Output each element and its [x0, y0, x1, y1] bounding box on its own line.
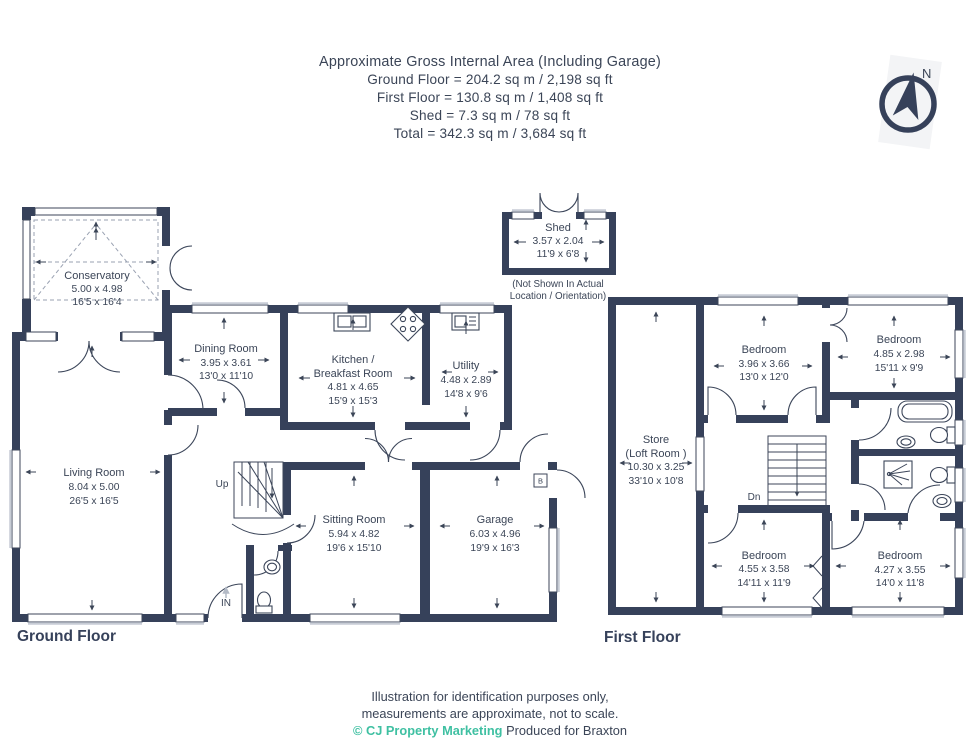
compass-north-label: N — [922, 66, 931, 81]
shed-note-line1: (Not Shown In Actual — [512, 279, 604, 290]
utility-imperial: 14'8 x 9'6 — [444, 389, 488, 400]
store-metric: 10.30 x 3.25 — [628, 462, 685, 473]
bedroom-tl-imperial: 13'0 x 12'0 — [739, 372, 788, 383]
bedroom-bl-metric: 4.55 x 3.58 — [739, 564, 790, 575]
kitchen-imperial: 15'9 x 15'3 — [328, 396, 377, 407]
entrance-label: IN — [221, 598, 231, 609]
store-door-screen — [696, 437, 704, 491]
sitting-room-metric: 5.94 x 4.82 — [329, 529, 380, 540]
kitchen-name-line1: Kitchen / — [332, 354, 376, 366]
bath-icon — [898, 401, 952, 422]
kitchen-name-line2: Breakfast Room — [314, 368, 393, 380]
boiler-icon: B — [534, 474, 547, 487]
conservatory-imperial: 16'5 x 16'4 — [72, 297, 121, 308]
garage-name: Garage — [477, 514, 514, 526]
shed-note-line2: Location / Orientation) — [510, 291, 606, 302]
bedroom-tr-name: Bedroom — [877, 334, 922, 346]
first-floor-labels: Store (Loft Room ) 10.30 x 3.25 33'10 x … — [625, 334, 925, 589]
dining-room-name: Dining Room — [194, 343, 258, 355]
store-imperial: 33'10 x 10'8 — [629, 476, 684, 487]
toilet-icon — [931, 427, 956, 443]
stairs-up-label: Up — [216, 479, 229, 490]
bedroom-br-imperial: 14'0 x 11'8 — [876, 578, 925, 589]
stairs-down-label: Dn — [748, 492, 761, 503]
ground-floor-title: Ground Floor — [17, 628, 116, 645]
wc-toilet-icon — [256, 592, 272, 613]
first-floor-plan: Dn — [604, 296, 965, 647]
shed-imperial: 11'9 x 6'8 — [537, 249, 580, 260]
footer: Illustration for identification purposes… — [0, 688, 980, 739]
garage-door — [549, 528, 557, 592]
footer-copyright: © CJ Property Marketing — [353, 723, 503, 738]
toilet-icon — [931, 467, 956, 483]
bedroom-tr-imperial: 15'11 x 9'9 — [875, 363, 924, 374]
stairs-down: Dn — [748, 436, 826, 508]
closet-doors — [813, 556, 822, 576]
store-name-line1: Store — [643, 434, 669, 446]
kitchen-metric: 4.81 x 4.65 — [328, 382, 379, 393]
hall-archway — [232, 524, 294, 535]
ground-floor-plan: Up — [11, 207, 586, 645]
store-name-line2: (Loft Room ) — [625, 448, 686, 460]
bedroom-br-name: Bedroom — [878, 550, 923, 562]
entrance-door-gap — [208, 613, 242, 623]
bedroom-bl-imperial: 14'11 x 11'9 — [737, 578, 791, 589]
bedroom-br-metric: 4.27 x 3.55 — [875, 565, 926, 576]
basin-icon — [897, 436, 915, 448]
bedroom-tl-metric: 3.96 x 3.66 — [739, 359, 790, 370]
floorplan-drawing: N — [0, 0, 980, 749]
shed-double-door — [540, 193, 578, 212]
living-room-name: Living Room — [63, 467, 124, 479]
french-door-gap — [58, 331, 120, 342]
shed-metric: 3.57 x 2.04 — [533, 236, 584, 247]
footer-disclaimer-line1: Illustration for identification purposes… — [0, 688, 980, 705]
footer-disclaimer-line2: measurements are approximate, not to sca… — [0, 705, 980, 722]
basin-icon — [933, 495, 951, 508]
first-floor-title: First Floor — [604, 629, 681, 646]
shed-name: Shed — [545, 222, 571, 234]
bedroom-bl-name: Bedroom — [742, 550, 787, 562]
living-room-metric: 8.04 x 5.00 — [69, 482, 120, 493]
dining-room-metric: 3.95 x 3.61 — [201, 358, 252, 369]
boiler-label: B — [538, 477, 543, 486]
footer-credit-line: © CJ Property Marketing Produced for Bra… — [0, 722, 980, 739]
dining-room-imperial: 13'0 x 11'10 — [199, 371, 253, 382]
bedroom-tl-name: Bedroom — [742, 344, 787, 356]
utility-name: Utility — [453, 360, 480, 372]
floorplan-page: Approximate Gross Internal Area (Includi… — [0, 0, 980, 749]
stairs-up: Up — [216, 462, 283, 518]
closet-doors — [813, 588, 822, 608]
utility-metric: 4.48 x 2.89 — [441, 375, 492, 386]
shower-icon — [884, 461, 912, 488]
sitting-room-imperial: 19'6 x 15'10 — [327, 543, 382, 554]
living-room-imperial: 26'5 x 16'5 — [69, 496, 118, 507]
garage-metric: 6.03 x 4.96 — [470, 529, 521, 540]
shed-plan: Shed 3.57 x 2.04 11'9 x 6'8 (Not Shown I… — [502, 193, 616, 302]
wc-basin-icon — [264, 560, 280, 574]
bedroom-tr-metric: 4.85 x 2.98 — [874, 349, 925, 360]
kitchen-sink-icon — [334, 313, 370, 331]
garage-imperial: 19'9 x 16'3 — [470, 543, 519, 554]
sitting-room-name: Sitting Room — [323, 514, 386, 526]
footer-produced-for: Produced for Braxton — [506, 723, 627, 738]
conservatory-metric: 5.00 x 4.98 — [72, 284, 123, 295]
compass-icon: N — [878, 55, 942, 149]
ground-floor-doors — [58, 246, 585, 618]
conservatory-name: Conservatory — [64, 270, 130, 282]
